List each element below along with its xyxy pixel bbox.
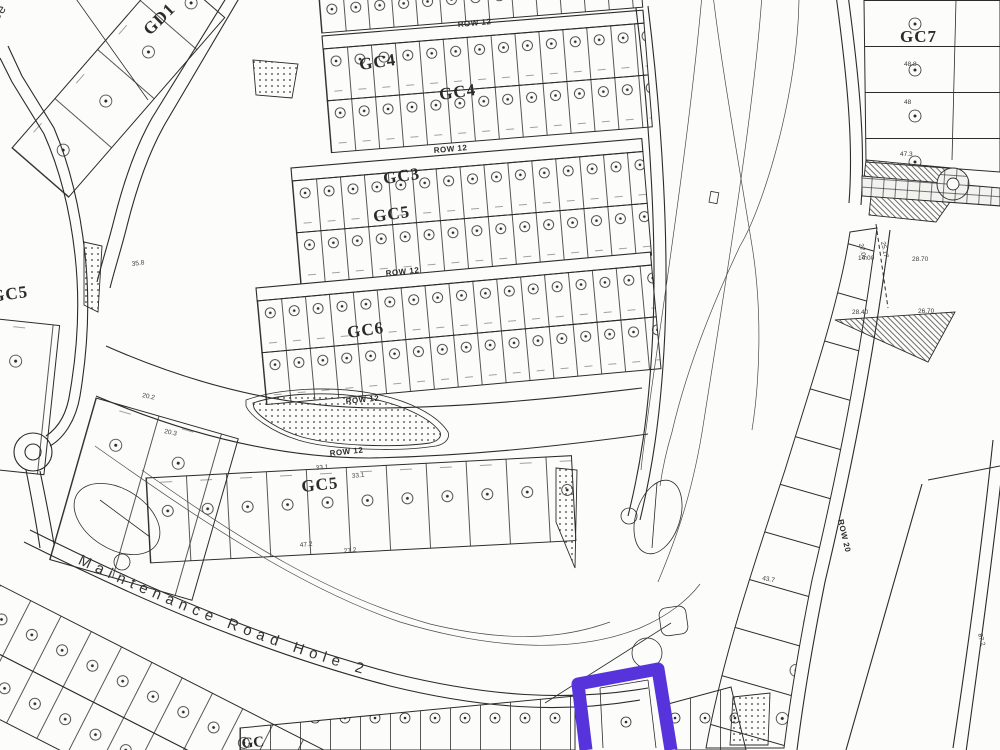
right-parcels[interactable] (846, 440, 1000, 750)
dim-33-1-a: 33.1 (315, 464, 329, 472)
dim-48-8: 48.8 (904, 61, 917, 68)
plat-map-canvas: GD1 GC4 GC4 GC3 GC5 GC6 GC5 GC5 GC7 GC R… (0, 0, 1000, 750)
dim-47-2: 47.2 (299, 541, 313, 549)
dashed-boundary (876, 224, 888, 308)
gc7-access-road[interactable] (836, 0, 863, 205)
selected-lot-highlight[interactable] (578, 669, 671, 750)
row12-label-5: ROW 12 (329, 446, 363, 458)
block-gd1-lots[interactable] (12, 0, 225, 197)
block-label-gc5-mid: GC5 (300, 473, 339, 496)
dim-28-40: 28.40 (852, 309, 869, 316)
selected-lot[interactable] (578, 669, 671, 750)
dim-27-2: 27.2 (343, 547, 357, 555)
left-large-lots[interactable] (0, 318, 238, 600)
dim-33-1-b: 33.1 (351, 472, 365, 480)
fairway-marker-square (709, 191, 719, 203)
stipple-wedge-left-road (84, 242, 102, 312)
dim-48: 48 (904, 99, 912, 106)
right-column-lots[interactable] (706, 228, 877, 748)
dim-20-2: 20.2 (142, 392, 156, 402)
block-gc7-lots[interactable] (864, 0, 1000, 172)
dim-87-2: 87.2 (976, 633, 986, 647)
stipple-wedge-gc5 (556, 468, 577, 568)
dim-35-8: 35.8 (131, 259, 145, 268)
dim-26-70: 26.70 (918, 308, 935, 315)
golf-green-middle (621, 474, 691, 560)
block-label-gc7: GC7 (900, 27, 937, 46)
row20-label: ROW 20 (836, 518, 852, 553)
dim-28-70: 28.70 (912, 256, 929, 263)
block-label-gc5-left: GC5 (0, 282, 29, 306)
stipple-wedge-gc4 (253, 60, 298, 98)
bottom-center-lots[interactable] (240, 696, 575, 750)
dim-47-3: 47.3 (900, 151, 913, 158)
plat-map: GD1 GC4 GC4 GC3 GC5 GC6 GC5 GC5 GC7 GC R… (0, 0, 1000, 750)
block-label-gc-partial: GC (241, 734, 265, 750)
